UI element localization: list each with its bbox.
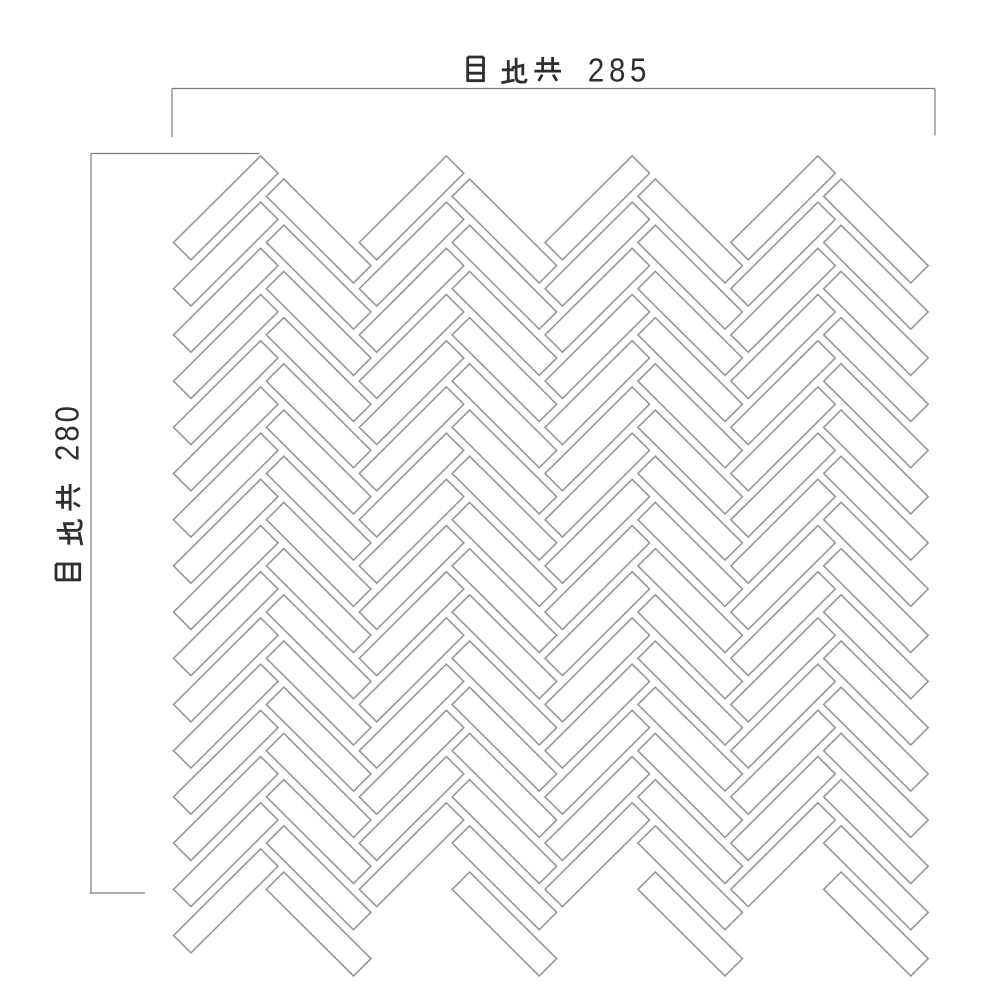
svg-text:285: 285 [588,51,651,89]
svg-text:280: 280 [49,403,86,461]
